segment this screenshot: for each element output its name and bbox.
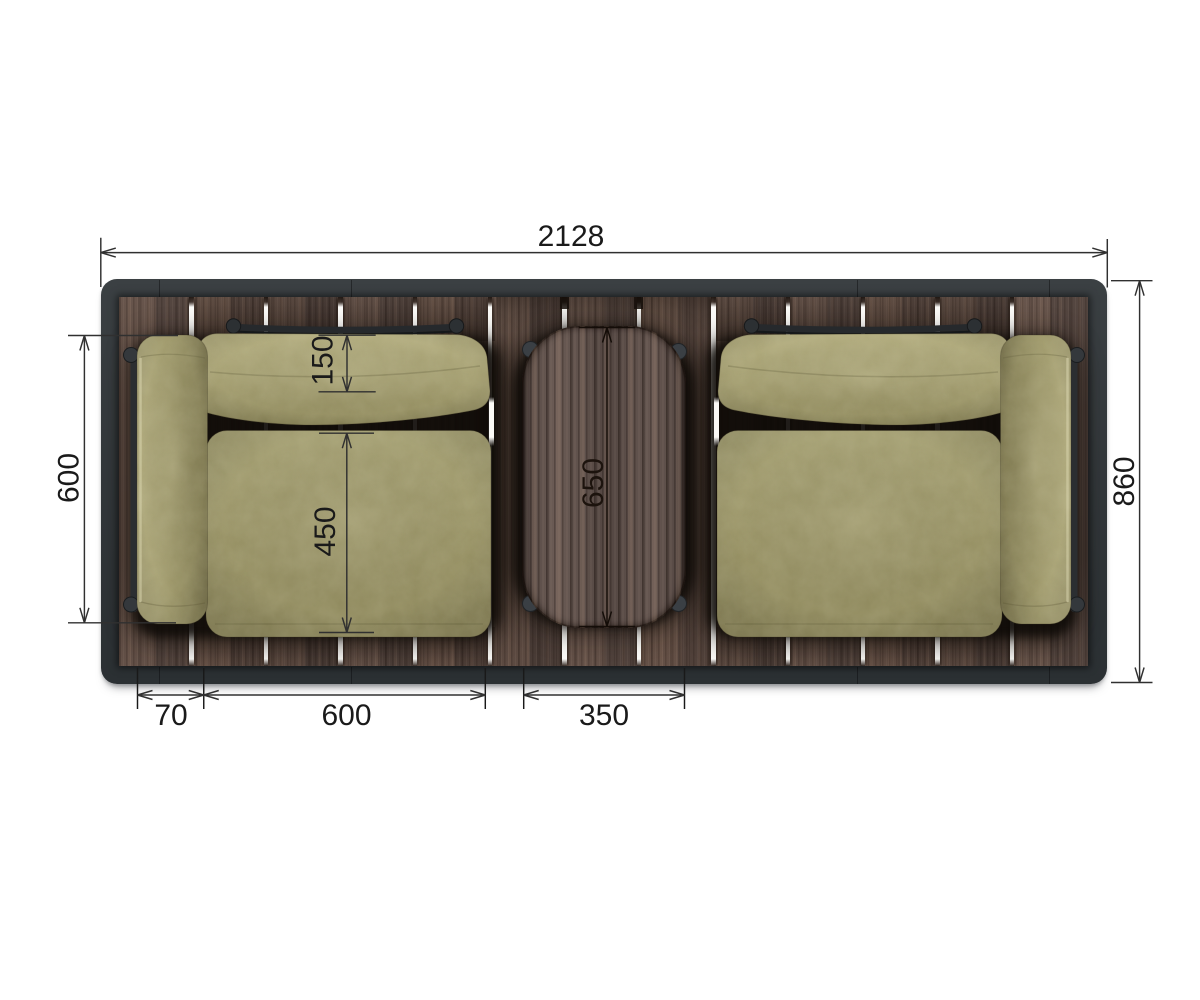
svg-text:350: 350 [579,699,629,732]
svg-text:2128: 2128 [538,220,605,253]
svg-text:450: 450 [309,506,342,556]
svg-text:860: 860 [1108,456,1141,506]
svg-text:650: 650 [577,458,610,508]
svg-text:600: 600 [53,453,86,503]
svg-text:600: 600 [321,699,371,732]
svg-text:70: 70 [154,699,187,732]
svg-text:150: 150 [307,335,340,385]
